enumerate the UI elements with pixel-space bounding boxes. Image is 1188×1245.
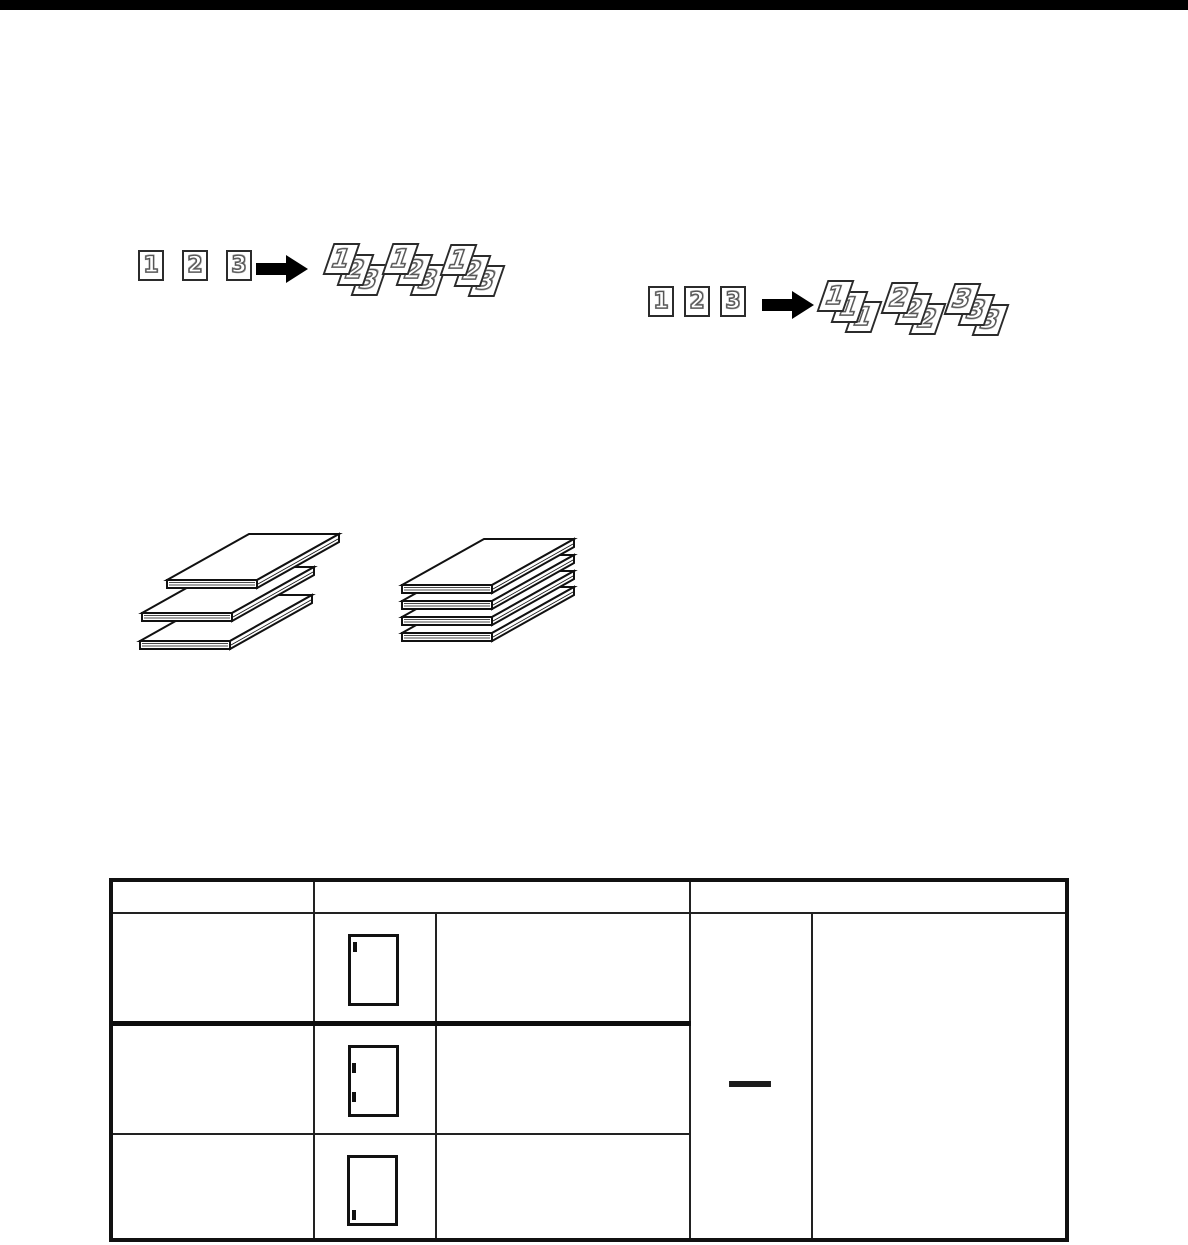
stacked-set: 3 3 3 bbox=[949, 283, 1021, 347]
page-staple-bottom-left-icon bbox=[347, 1155, 398, 1226]
grid-line bbox=[435, 912, 437, 1238]
page-digit: 1 bbox=[653, 291, 668, 313]
page-top-rule bbox=[0, 0, 1188, 10]
staple-position-table: — bbox=[109, 878, 1069, 1242]
merged-cell: — bbox=[689, 912, 811, 1234]
original-page-box: 1 bbox=[648, 286, 674, 317]
page-digit: 3 bbox=[949, 286, 975, 311]
grid-line bbox=[113, 1133, 691, 1135]
page-digit: 1 bbox=[445, 247, 471, 272]
page-digit: 1 bbox=[143, 255, 158, 277]
page-digit: 3 bbox=[725, 291, 740, 313]
page-digit: 1 bbox=[822, 283, 848, 308]
staple-mark bbox=[352, 1210, 356, 1220]
right-arrow-icon bbox=[256, 254, 308, 284]
offset-stack bbox=[140, 534, 339, 649]
original-page-box: 2 bbox=[684, 286, 710, 317]
grid-line bbox=[113, 912, 1065, 914]
page-digit: 2 bbox=[689, 291, 704, 313]
staple-mark bbox=[352, 1063, 356, 1073]
sorted-set: 3 2 1 bbox=[445, 244, 517, 308]
page-staple-left-double-icon bbox=[348, 1045, 399, 1117]
page-digit: 1 bbox=[328, 246, 354, 271]
page-staple-top-left-icon bbox=[348, 934, 399, 1006]
grid-line bbox=[113, 1021, 691, 1026]
aligned-stack bbox=[402, 539, 574, 641]
original-page-box: 3 bbox=[226, 250, 252, 281]
page-digit: 2 bbox=[886, 285, 912, 310]
page-digit: 1 bbox=[387, 246, 413, 271]
grid-line bbox=[811, 912, 813, 1238]
staple-mark bbox=[353, 942, 357, 952]
paper-stacks-illustration bbox=[120, 505, 600, 675]
original-page-box: 2 bbox=[182, 250, 208, 281]
page-digit: 3 bbox=[231, 255, 246, 277]
page-digit: 2 bbox=[187, 255, 202, 277]
original-page-box: 3 bbox=[720, 286, 746, 317]
staple-mark bbox=[352, 1092, 356, 1102]
grid-line bbox=[313, 882, 315, 1238]
original-page-box: 1 bbox=[138, 250, 164, 281]
right-arrow-icon bbox=[762, 290, 814, 320]
